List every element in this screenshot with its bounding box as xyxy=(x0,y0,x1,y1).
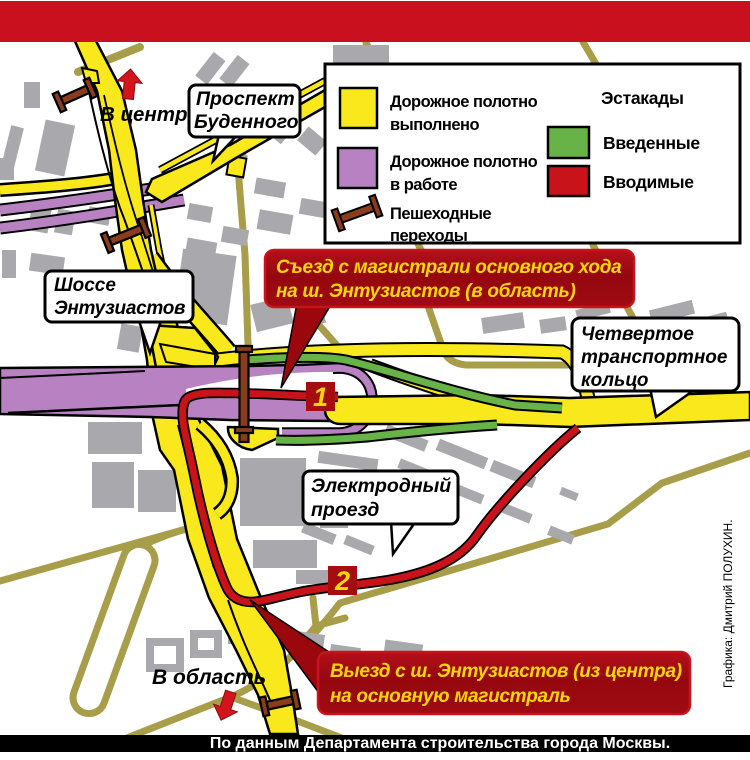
svg-text:Введенные: Введенные xyxy=(603,133,700,153)
svg-text:транспортное: транспортное xyxy=(581,347,728,368)
svg-text:Дорожное полотно: Дорожное полотно xyxy=(390,153,538,171)
svg-text:Электродный: Электродный xyxy=(311,475,451,497)
svg-text:Графика: Дмитрий ПОЛУХИН.: Графика: Дмитрий ПОЛУХИН. xyxy=(721,519,735,688)
svg-text:проезд: проезд xyxy=(311,499,379,521)
svg-text:Съезд с магистрали основного х: Съезд с магистрали основного хода xyxy=(276,257,622,278)
svg-text:выполнено: выполнено xyxy=(390,116,479,134)
svg-text:2: 2 xyxy=(334,566,350,596)
svg-text:Выезд с ш. Энтузиастов (из цен: Выезд с ш. Энтузиастов (из центра) xyxy=(330,661,682,682)
svg-text:в работе: в работе xyxy=(390,176,457,194)
svg-text:Энтузиастов: Энтузиастов xyxy=(54,298,185,319)
svg-text:Дорожное полотно: Дорожное полотно xyxy=(390,93,538,111)
svg-text:В область: В область xyxy=(152,666,266,689)
svg-text:Шоссе: Шоссе xyxy=(54,275,116,296)
svg-text:на ш. Энтузиастов (в область): на ш. Энтузиастов (в область) xyxy=(276,281,576,302)
svg-text:Вводимые: Вводимые xyxy=(603,172,694,192)
svg-text:Пешеходные: Пешеходные xyxy=(390,205,491,223)
svg-text:Четвертое: Четвертое xyxy=(581,324,694,345)
svg-text:В центр: В центр xyxy=(100,103,188,126)
svg-text:1: 1 xyxy=(313,382,328,412)
svg-text:Эстакады: Эстакады xyxy=(601,88,684,108)
svg-text:Буденного: Буденного xyxy=(194,111,299,133)
svg-text:на основную магистраль: на основную магистраль xyxy=(330,686,571,707)
svg-text:кольцо: кольцо xyxy=(581,370,649,391)
svg-text:Проспект: Проспект xyxy=(196,88,295,110)
svg-text:переходы: переходы xyxy=(390,227,467,245)
svg-text:По данным Департамента строите: По данным Департамента строительства гор… xyxy=(210,735,670,752)
